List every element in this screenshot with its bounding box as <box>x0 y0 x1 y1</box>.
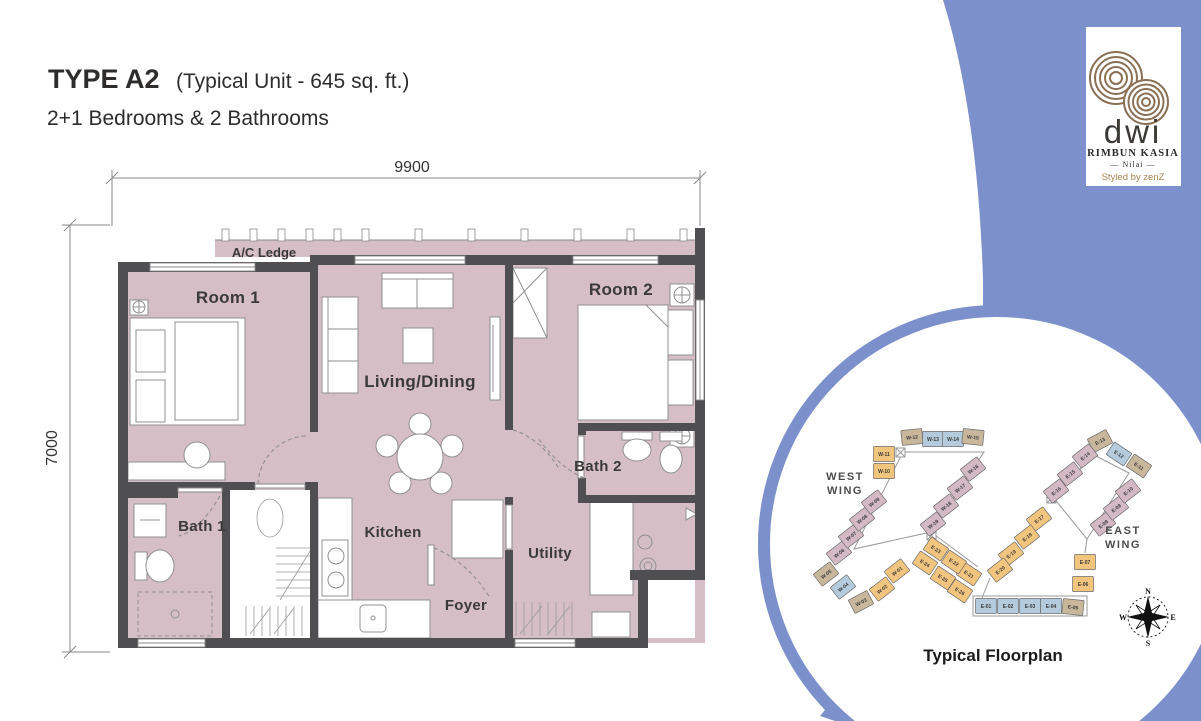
east-wing-label-line2: WING <box>1105 539 1141 551</box>
logo-tagline-text: Styled by zenZ <box>1102 172 1165 183</box>
room-label-bath-2: Bath 2 <box>574 458 622 475</box>
compass-s: S <box>1146 639 1151 648</box>
unit-box-W-14: W-14 <box>943 432 964 447</box>
unit-box-E-02: E-02 <box>998 599 1019 614</box>
unit-box-W-15: W-15 <box>962 428 984 445</box>
page-title-detail: (Typical Unit - 645 sq. ft.) <box>176 70 409 93</box>
svg-text:W-11: W-11 <box>878 452 890 458</box>
svg-text:E-04: E-04 <box>1046 604 1057 610</box>
unit-box-E-06: E-06 <box>1073 577 1094 592</box>
compass-w: W <box>1119 613 1127 622</box>
header: TYPE A2 (Typical Unit - 645 sq. ft.) 2+1… <box>47 64 409 130</box>
logo-location-text: — Nilai — <box>1110 160 1156 169</box>
west-wing-label-line1: WEST <box>826 471 864 483</box>
unit-box-E-03: E-03 <box>1020 599 1041 614</box>
logo-project-text: RIMBUN KASIA <box>1087 148 1179 159</box>
svg-text:E-02: E-02 <box>1003 604 1014 610</box>
ledge-vents <box>222 229 687 241</box>
flyer-page: TYPE A2 (Typical Unit - 645 sq. ft.) 2+1… <box>0 0 1201 721</box>
unit-box-W-10: W-10 <box>874 464 895 479</box>
room-label-room-2: Room 2 <box>589 280 653 299</box>
room-label-living-dining: Living/Dining <box>364 372 476 391</box>
unit-box-E-04: E-04 <box>1041 599 1062 614</box>
svg-text:E-05: E-05 <box>1067 604 1078 611</box>
svg-text:W-12: W-12 <box>906 434 919 441</box>
svg-text:W-15: W-15 <box>967 434 980 441</box>
room-label-kitchen: Kitchen <box>364 524 421 541</box>
unit-box-E-07: E-07 <box>1075 555 1096 570</box>
room-label-utility: Utility <box>528 545 572 562</box>
svg-text:W-14: W-14 <box>947 437 959 443</box>
west-wing-label-line2: WING <box>827 485 863 497</box>
unit-box-W-12: W-12 <box>901 428 923 445</box>
unit-box-W-13: W-13 <box>923 432 944 447</box>
svg-text:E-03: E-03 <box>1025 604 1036 610</box>
dimension-width-label: 9900 <box>394 159 430 176</box>
svg-text:E-07: E-07 <box>1080 560 1091 566</box>
compass-n: N <box>1145 587 1151 596</box>
brand-logo-card: dwi RIMBUN KASIA — Nilai — Styled by zen… <box>1086 27 1181 186</box>
room-label-bath-1: Bath 1 <box>178 518 226 535</box>
flyer-svg: TYPE A2 (Typical Unit - 645 sq. ft.) 2+1… <box>0 0 1201 721</box>
unit-box-E-05: E-05 <box>1062 598 1084 615</box>
svg-text:E-01: E-01 <box>981 604 992 610</box>
room-label-foyer: Foyer <box>445 597 487 614</box>
floorplan-drawing: A/C LedgeRoom 1Living/DiningRoom 2Bath 2… <box>118 228 705 648</box>
room-label-room-1: Room 1 <box>196 288 260 307</box>
unit-box-E-01: E-01 <box>976 599 997 614</box>
page-subtitle: 2+1 Bedrooms & 2 Bathrooms <box>47 107 329 130</box>
dimension-height-label: 7000 <box>44 430 61 466</box>
room-label-ac-ledge: A/C Ledge <box>232 245 296 260</box>
unit-box-W-11: W-11 <box>874 447 895 462</box>
svg-text:E-06: E-06 <box>1078 582 1089 588</box>
svg-text:W-13: W-13 <box>927 437 939 443</box>
page-title: TYPE A2 <box>48 64 160 94</box>
svg-text:W-10: W-10 <box>878 469 890 475</box>
logo-brand-text: dwi <box>1104 113 1163 150</box>
inset-caption: Typical Floorplan <box>923 646 1062 665</box>
compass-e: E <box>1170 613 1175 622</box>
east-wing-label-line1: EAST <box>1105 525 1140 537</box>
